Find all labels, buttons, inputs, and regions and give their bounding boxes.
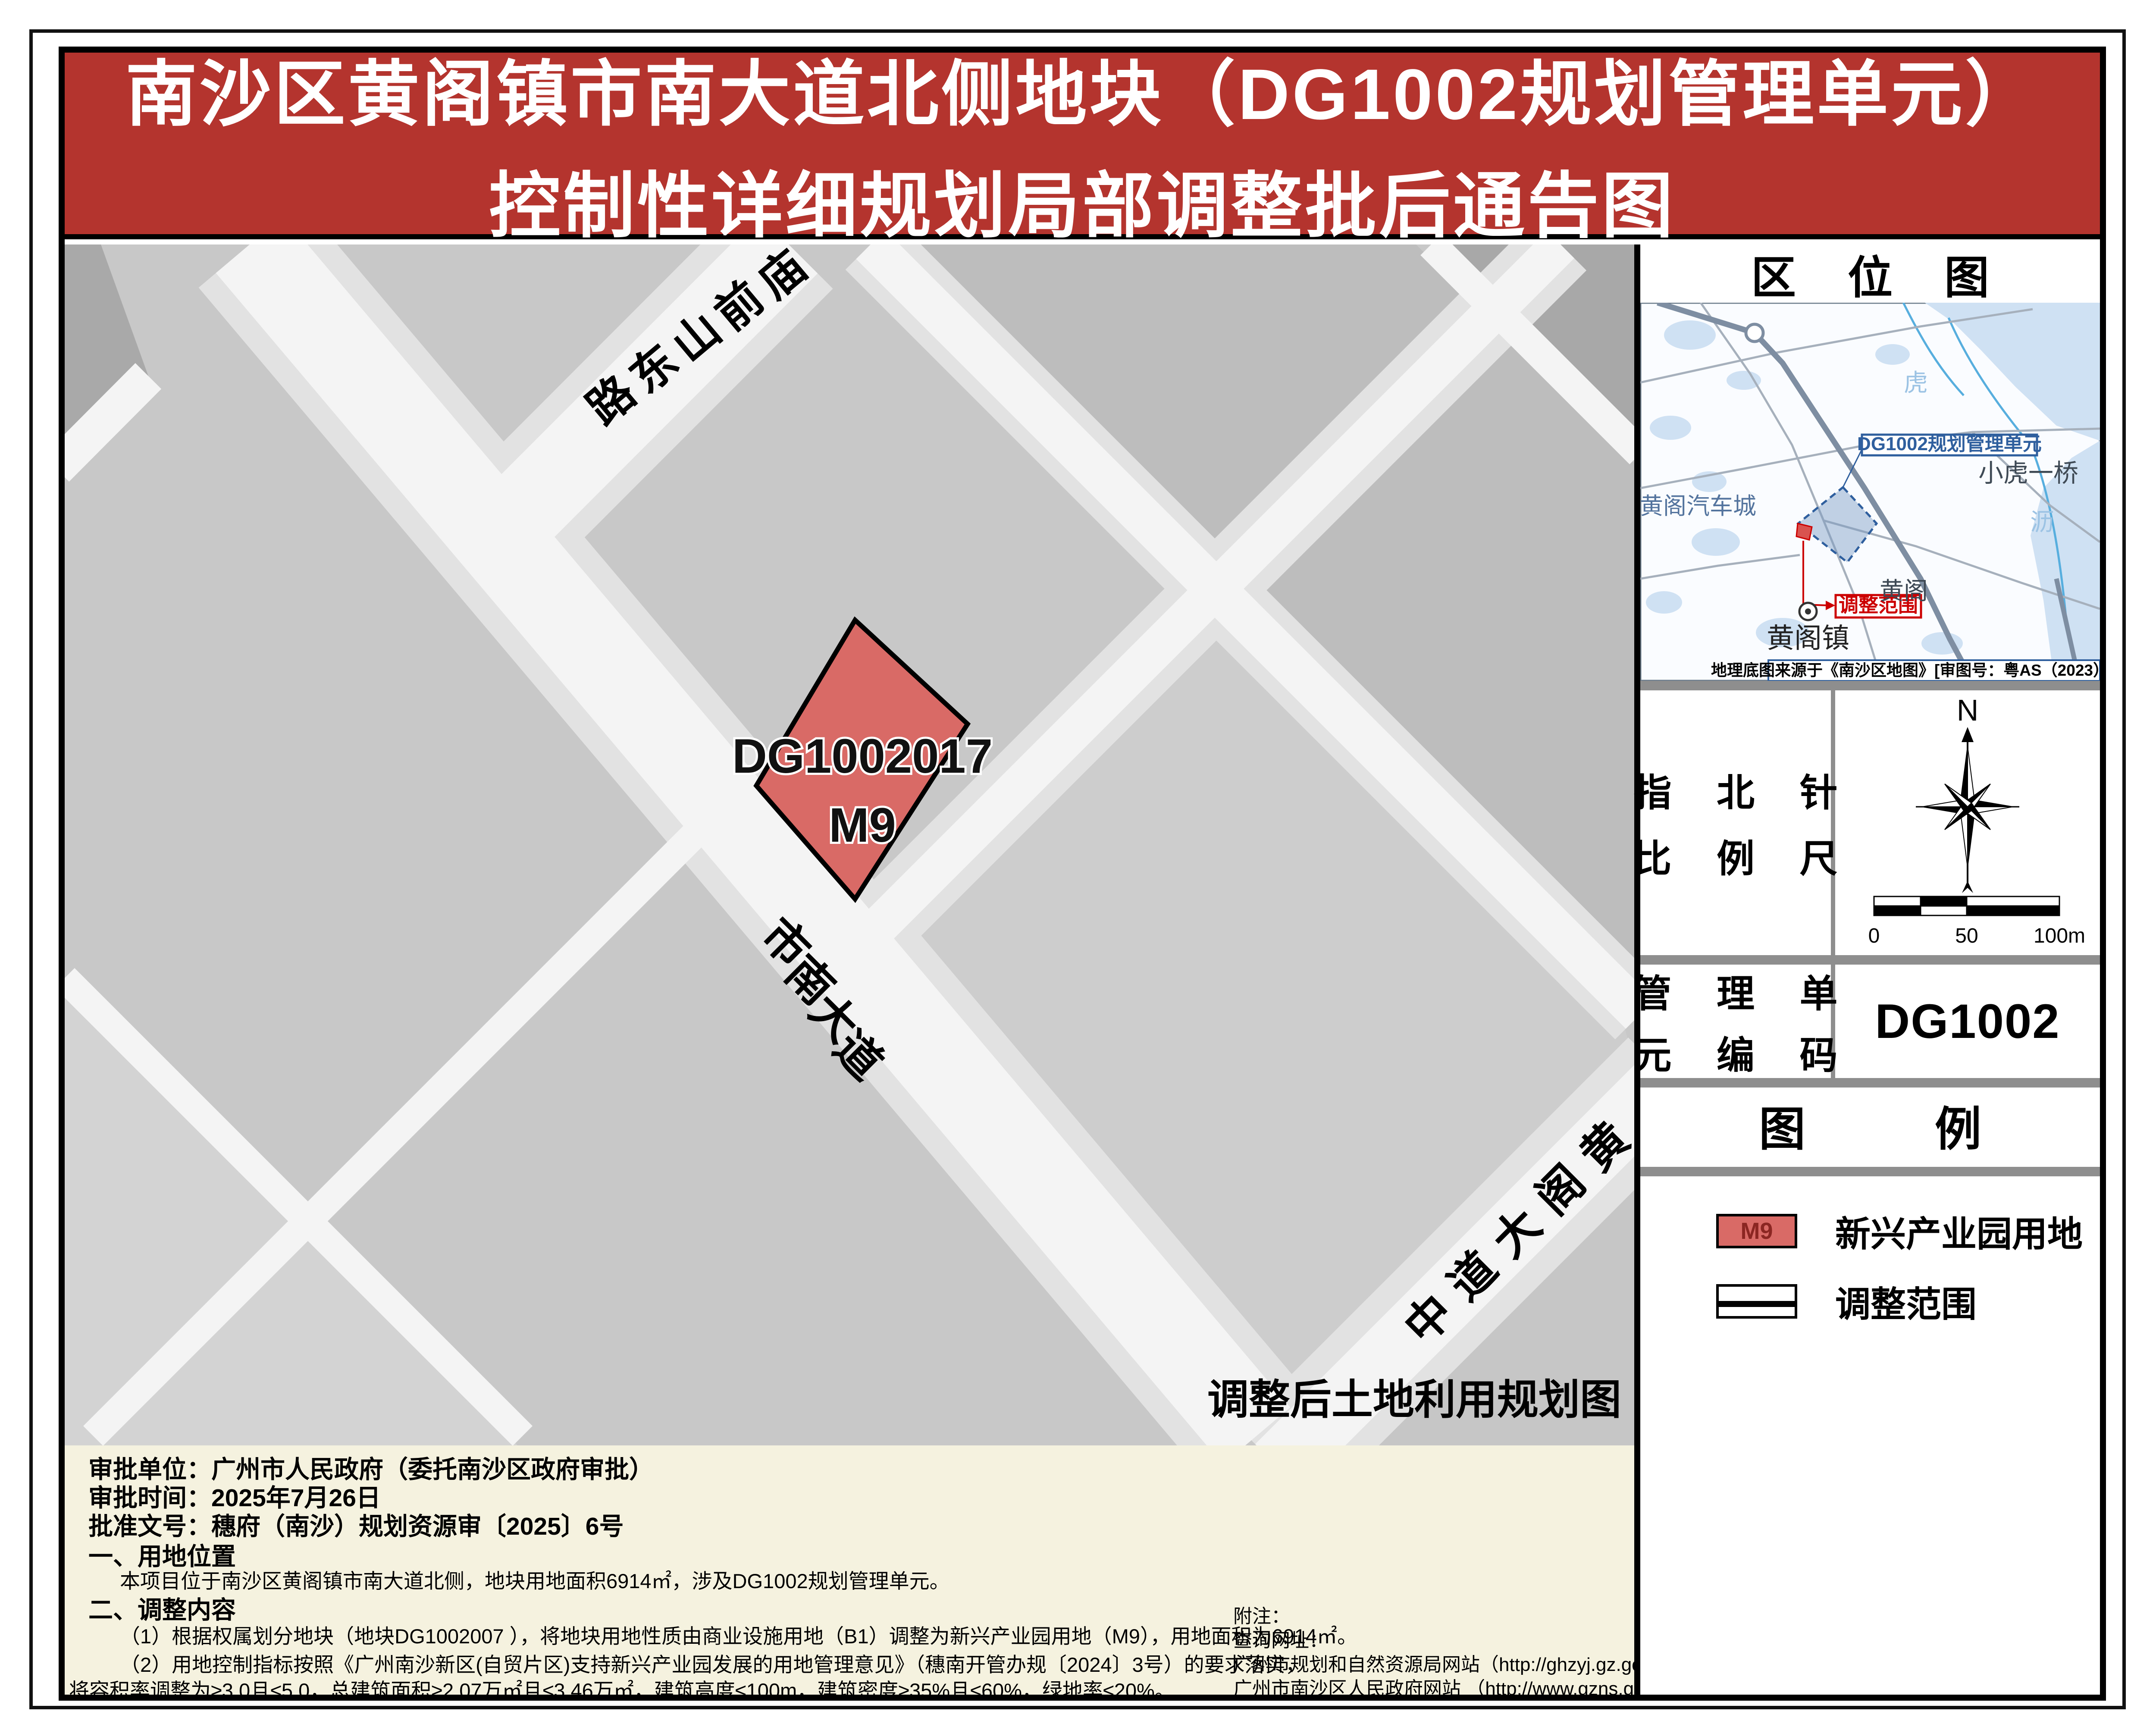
approval-info-panel: 审批单位：广州市人民政府（委托南沙区政府审批） 审批时间：2025年7月26日 … (65, 1445, 1634, 1695)
place-bridge: 小虎一桥 (1978, 459, 2078, 487)
svg-text:100m: 100m (2034, 925, 2085, 947)
legend-swatch-scope (1716, 1284, 1797, 1319)
location-header-char: 区 (1751, 241, 1796, 306)
unit-label-text: DG1002规划管理单元 (1857, 433, 2042, 454)
location-inset-svg: 虎 沥 DG1002规划管理单元 调整范围 黄阁汽车城 小虎一桥 黄阁 (1640, 303, 2100, 681)
legend-header-char: 图 (1759, 1092, 1805, 1159)
unit-code-label-line1: 管 理 单 (1617, 963, 1855, 1018)
legend-item-m9: M9 新兴产业园用地 (1716, 1205, 2083, 1257)
section2-item2b: 将容积率调整为≥3.0且≤5.0，总建筑面积≥2.07万㎡且≤3.46万㎡，建筑… (69, 1674, 1175, 1704)
sidebar-divider (1640, 1167, 2100, 1176)
location-header-char: 位 (1848, 241, 1893, 306)
notes-url-title: 查询网址： (1233, 1625, 1328, 1652)
page-title-line2: 控制性详细规划局部调整批后通告图 (489, 147, 1676, 251)
scale-bar-segments (1874, 896, 2059, 915)
location-inset-map: 虎 沥 DG1002规划管理单元 调整范围 黄阁汽车城 小虎一桥 黄阁 (1640, 303, 2100, 681)
legend-swatch-m9-text: M9 (1740, 1218, 1773, 1244)
section1-body: 本项目位于南沙区黄阁镇市南大道北侧，地块用地面积6914㎡，涉及DG1002规划… (120, 1564, 950, 1594)
land-use-map: DG1002017 M9 庙前山东路市南大道黄阁大道中 调整后土地利用规划图 (65, 244, 1634, 1445)
compass-label-line2: 比 例 尺 (1617, 828, 1855, 883)
place-huangge: 黄阁 (1880, 577, 1928, 605)
page-title-line1: 南沙区黄阁镇市南大道北侧地块（DG1002规划管理单元） (125, 36, 2039, 140)
location-header-char: 图 (1944, 241, 1989, 306)
notes-url2: 广州市南沙区人民政府网站 （http://www.gzns.gov.cn/）。 (1233, 1673, 1711, 1701)
notes-title: 附注： (1233, 1601, 1290, 1628)
parcel-code-label: DG1002017 (732, 729, 993, 783)
place-auto-city: 黄阁汽车城 (1640, 493, 1756, 519)
legend-scope-line-icon (1719, 1301, 1795, 1307)
unit-code-label-line2: 元 编 码 (1617, 1025, 1855, 1080)
inset-adjust-parcel (1796, 523, 1812, 540)
legend-swatch-m9: M9 (1716, 1214, 1797, 1248)
compass-scale-label: 指 北 针 比 例 尺 (1640, 690, 1831, 955)
location-map-header: 区 位 图 (1640, 244, 2100, 303)
notice-frame: 南沙区黄阁镇市南大道北侧地块（DG1002规划管理单元） 控制性详细规划局部调整… (59, 47, 2106, 1701)
compass-label-line1: 指 北 针 (1617, 762, 1855, 817)
legend-label-m9: 新兴产业园用地 (1835, 1205, 2083, 1257)
north-letter: N (1957, 693, 1979, 727)
river-name-char: 虎 (1904, 369, 1928, 396)
notes-url1: 广州市规划和自然资源局网站（http://ghzyj.gz.gov.cn/）， (1233, 1649, 1709, 1677)
parcel-use-label: M9 (829, 798, 896, 852)
unit-code-label: 管 理 单 元 编 码 (1640, 965, 1831, 1078)
river-name-char: 沥 (2030, 508, 2054, 536)
unit-code-value: DG1002 (1875, 993, 2060, 1049)
svg-text:50: 50 (1955, 925, 1978, 947)
town-symbol-dot (1805, 608, 1811, 614)
scale-bar: 0 50 100m (1835, 893, 2100, 949)
inset-caption-text: 地理底图来源于《南沙区地图》[审图号：粤AS（2023）006号] (1711, 661, 2100, 679)
map-caption: 调整后土地利用规划图 (1207, 1377, 1621, 1423)
sidebar-divider (1640, 681, 2100, 690)
land-use-map-svg: DG1002017 M9 庙前山东路市南大道黄阁大道中 调整后土地利用规划图 (65, 244, 1634, 1445)
legend-item-scope: 调整范围 (1716, 1276, 1977, 1327)
title-banner: 南沙区黄阁镇市南大道北侧地块（DG1002规划管理单元） 控制性详细规划局部调整… (65, 53, 2100, 239)
section2-item1: （1）根据权属划分地块（地块DG1002007 ），将地块用地性质由商业设施用地… (120, 1620, 1357, 1649)
north-arrow-icon: N (1835, 690, 2100, 893)
legend-header: 图 例 (1640, 1084, 2100, 1167)
legend-header-char: 例 (1935, 1092, 1981, 1159)
place-town: 黄阁镇 (1767, 623, 1849, 654)
compass-scale-section: 指 北 针 比 例 尺 N (1640, 690, 2100, 955)
sidebar: 区 位 图 (1640, 244, 2100, 1695)
compass-rose (1922, 746, 2013, 867)
compass-scale-cell: N (1835, 690, 2100, 955)
inset-interchange-icon (1746, 324, 1763, 342)
section2-item2a: （2）用地控制指标按照《广州南沙新区(自贸片区)支持新兴产业园发展的用地管理意见… (120, 1648, 1306, 1678)
unit-code-section: 管 理 单 元 编 码 DG1002 (1640, 965, 2100, 1078)
legend-label-scope: 调整范围 (1835, 1276, 1977, 1327)
svg-text:0: 0 (1868, 925, 1880, 947)
cell-divider (1831, 690, 1835, 955)
scale-bar-labels: 0 50 100m (1868, 925, 2085, 947)
unit-code-cell: DG1002 (1835, 965, 2100, 1078)
